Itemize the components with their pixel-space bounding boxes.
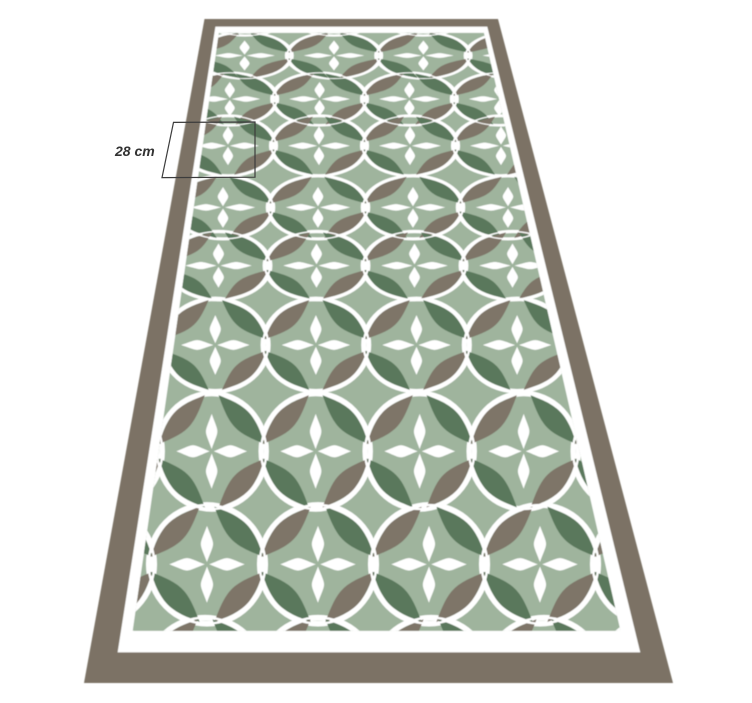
svg-text:28 cm: 28 cm bbox=[114, 143, 155, 159]
